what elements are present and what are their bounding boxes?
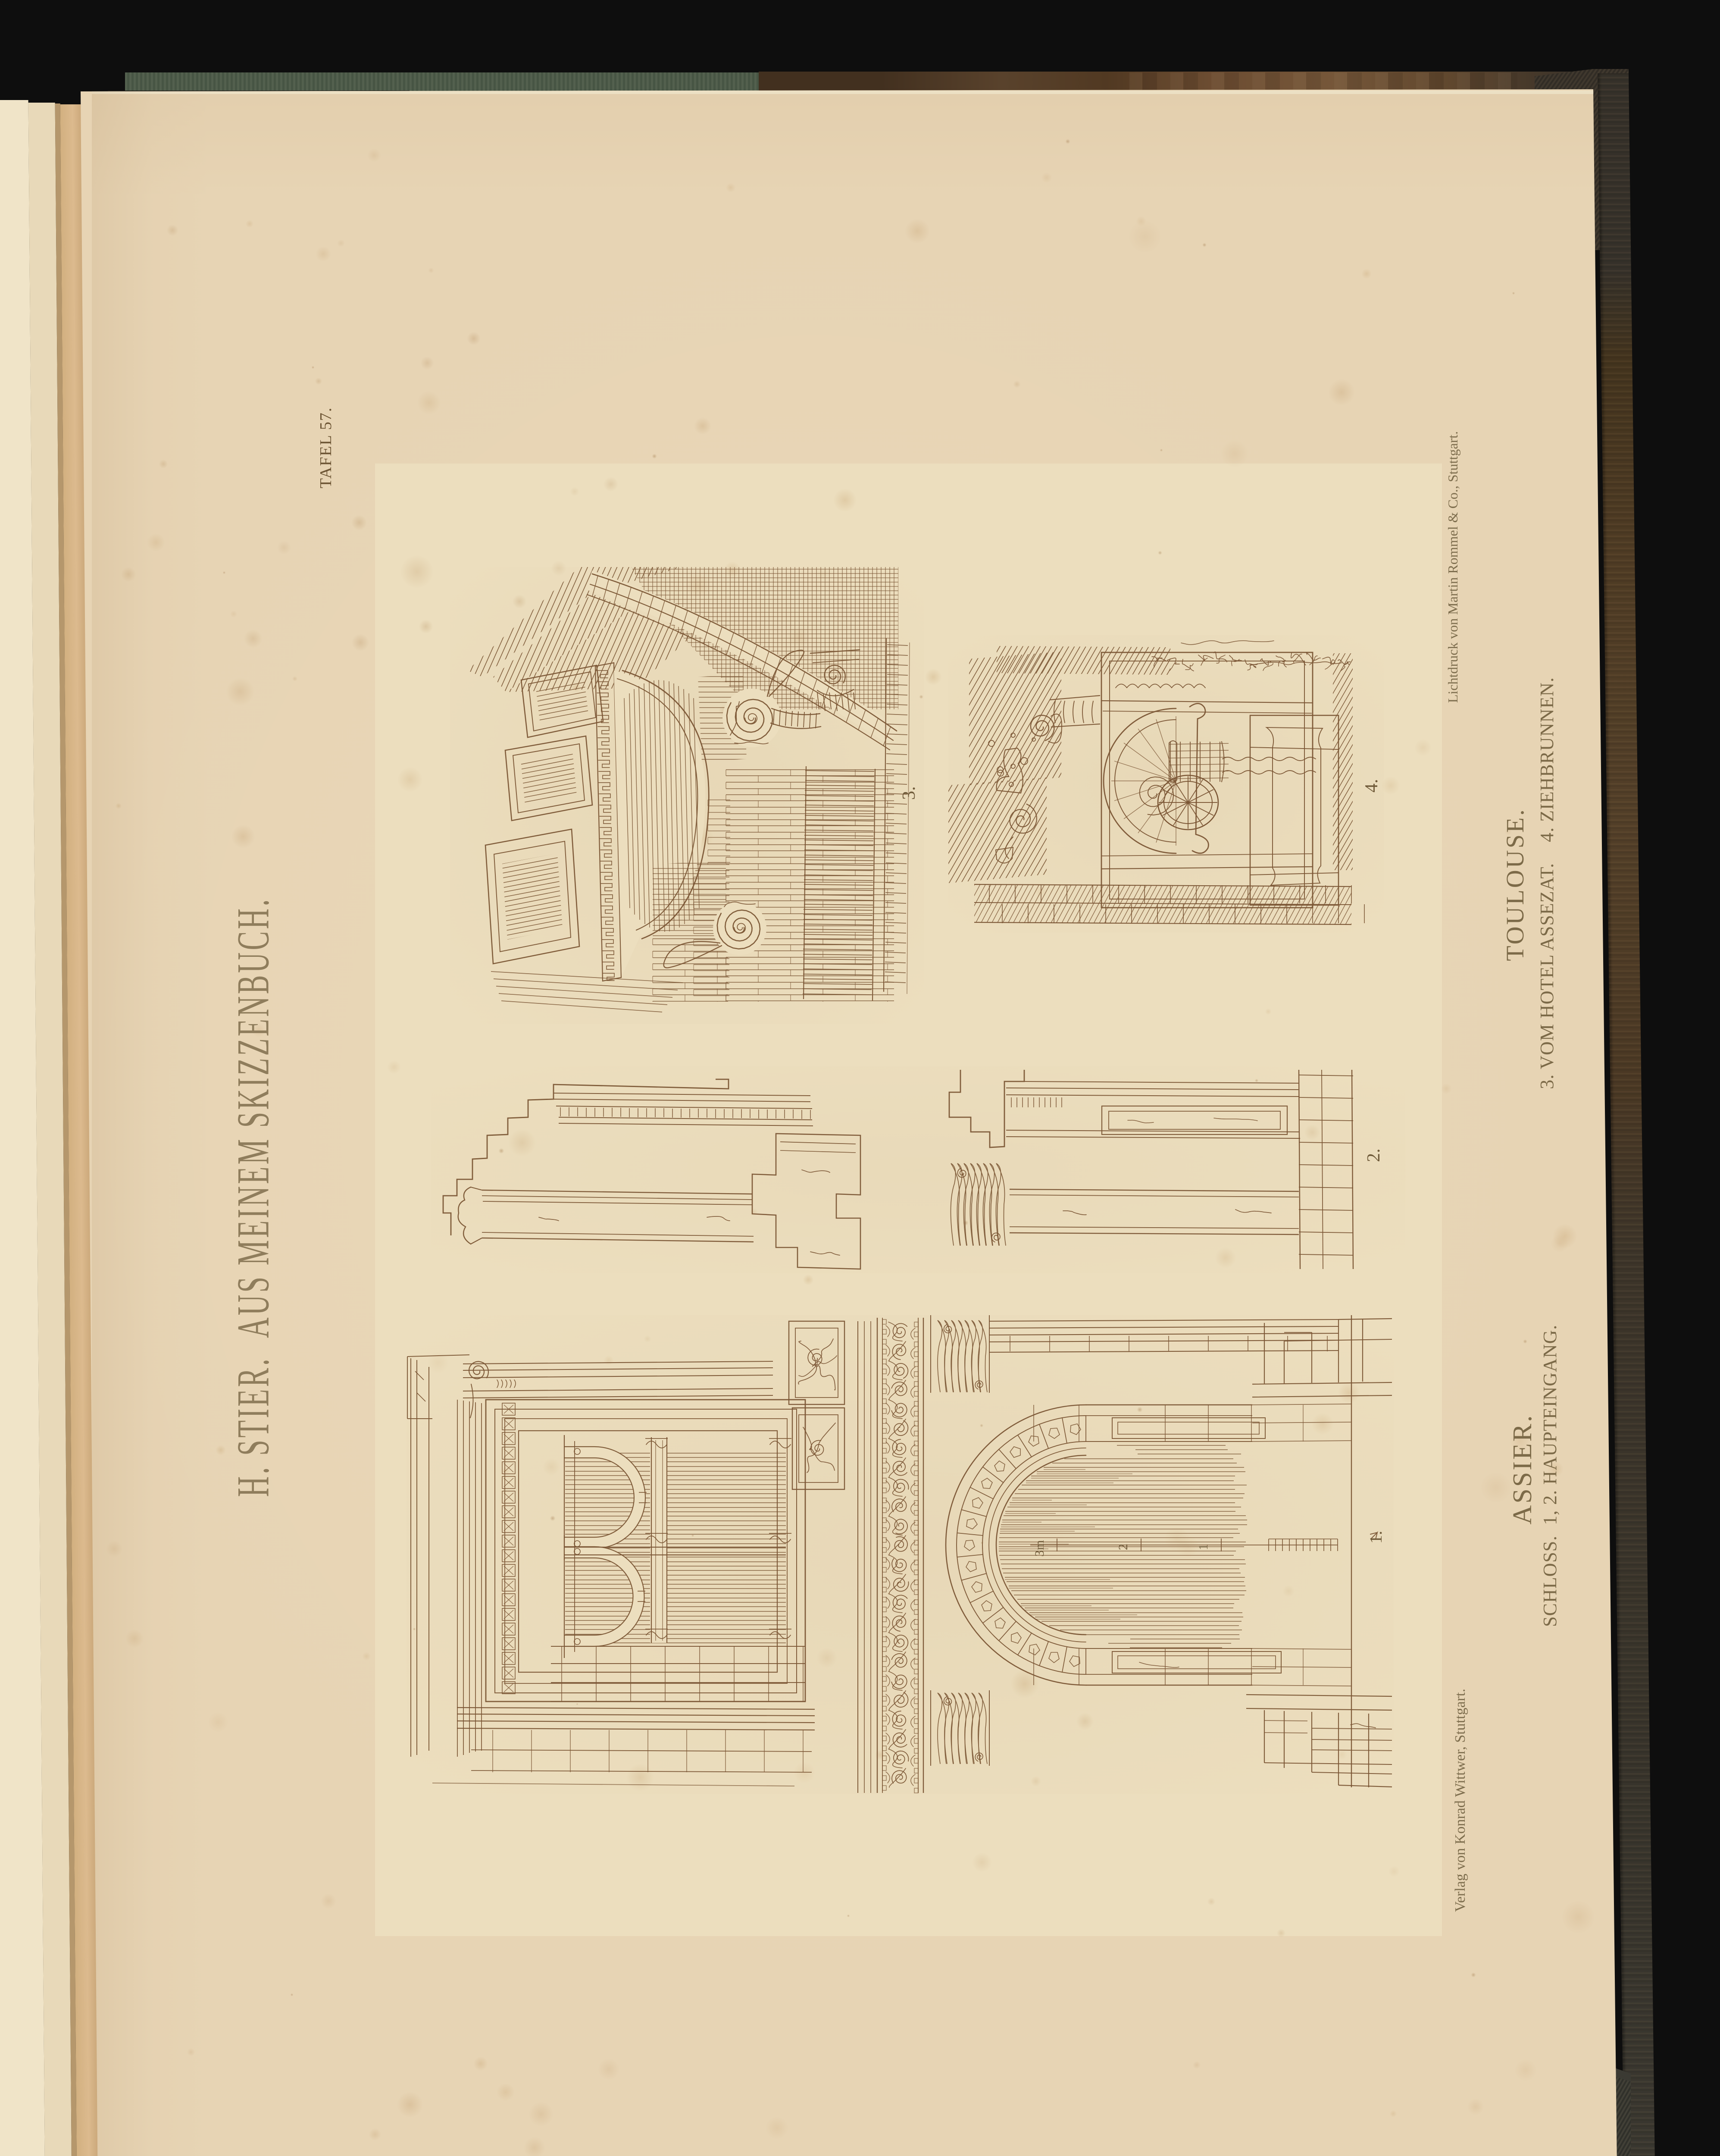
svg-text:3.: 3. (899, 787, 919, 800)
svg-text:4.: 4. (1362, 779, 1382, 793)
svg-text:3m: 3m (1032, 1540, 1047, 1557)
svg-text:1.: 1. (1366, 1531, 1385, 1544)
svg-text:2.: 2. (1364, 1149, 1384, 1163)
svg-text:1: 1 (1196, 1544, 1210, 1550)
svg-text:2: 2 (1116, 1544, 1130, 1550)
